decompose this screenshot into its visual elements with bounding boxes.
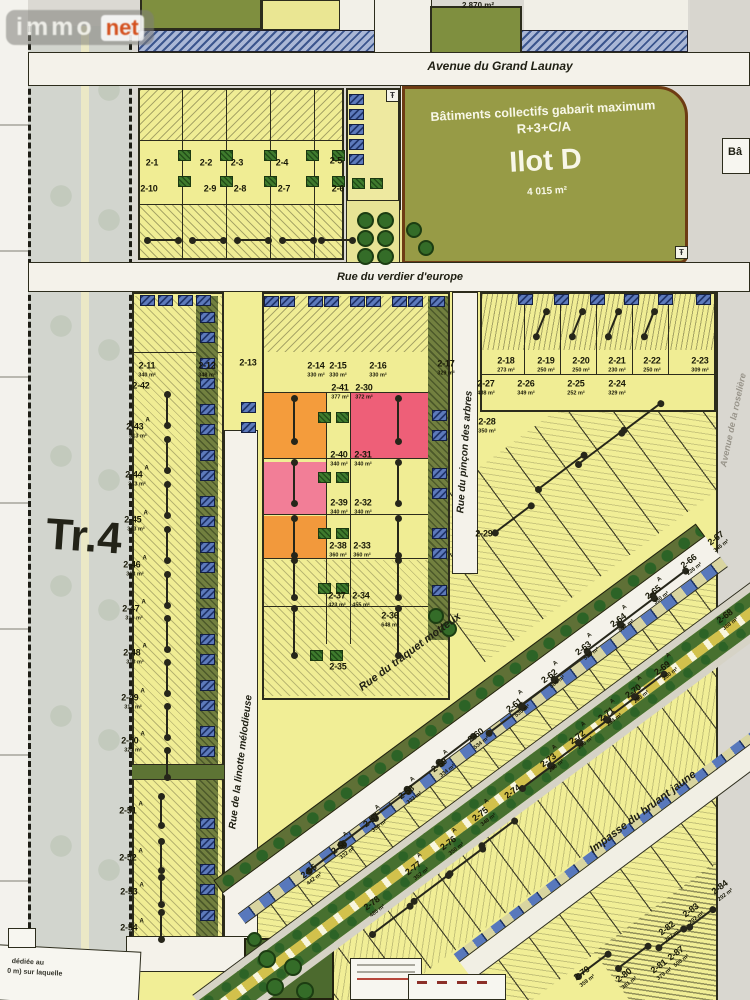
central-lower-hatch [264, 560, 448, 696]
immonet-watermark: immo net [6, 10, 154, 45]
east-divider [632, 294, 633, 374]
west-hedge-gap [132, 764, 224, 780]
top-area-fragment: 2 870 m² [462, 1, 494, 10]
subdivision-plan-photo: Tr.4 2 870 m² Avenue du Grand Launay Bât… [0, 0, 750, 1000]
utility-symbol-icon: Ŧ [386, 89, 399, 102]
block-a-divider [314, 90, 315, 258]
block-a-divider [270, 90, 271, 258]
ilot-d-text: Bâtiments collectifs gabarit maximum R+3… [418, 98, 673, 204]
top-lawn-east [430, 6, 522, 54]
central-row-line [264, 458, 448, 459]
watermark-immo: immo [16, 13, 95, 42]
central-row-line [264, 514, 448, 515]
tr4-label: Tr.4 [44, 509, 123, 564]
right-fragment-text: Bâ [728, 146, 742, 158]
left-paper-margin [0, 0, 28, 1000]
parcel-2-41-orange[interactable] [264, 392, 326, 458]
central-row-line [264, 558, 448, 559]
top-strip-white [340, 0, 374, 30]
block-a-top-hatch [140, 90, 342, 140]
top-strip-yellow [262, 0, 340, 30]
top-lawn-west [140, 0, 262, 30]
scalebar-box [408, 974, 506, 1000]
scale-bar [417, 981, 497, 984]
east-divider [668, 294, 669, 374]
utility-symbol-icon: Ŧ [675, 246, 688, 259]
east-divider [596, 294, 597, 374]
parcel-2-38-orange[interactable] [264, 516, 326, 558]
west-hedge-strip [196, 296, 218, 940]
east-divider [560, 294, 561, 374]
ilot-d-name: Ilot D [420, 138, 671, 184]
tree-cluster-yard [346, 200, 400, 264]
block-a-divider [182, 90, 183, 258]
block-a-line [140, 204, 342, 205]
street-label-verdier: Rue du verdier d'europe [337, 271, 463, 283]
parcel-2-39-pink[interactable] [264, 462, 326, 514]
block-a-bottom-hatch [140, 205, 342, 258]
cartouche-line [357, 978, 415, 980]
watermark-net: net [101, 15, 144, 41]
east-block-hatch [482, 294, 714, 350]
east-row-line [482, 374, 714, 375]
east-divider [524, 294, 525, 374]
central-right-hedge [428, 296, 448, 640]
block-a-line [140, 140, 342, 141]
top-white-east [524, 0, 688, 30]
cartouche-line [357, 971, 415, 973]
avenue-grand-launay-road[interactable] [28, 52, 750, 86]
legend-swatch-box [8, 928, 36, 948]
legend-box: dédiée au 0 m) sur laquelle [0, 944, 141, 1000]
street-label-grand-launay: Avenue du Grand Launay [427, 59, 572, 73]
cartouche-line [357, 964, 415, 966]
central-row-line [264, 392, 448, 393]
block-a-divider [226, 90, 227, 258]
central-top-hatch [264, 296, 448, 352]
